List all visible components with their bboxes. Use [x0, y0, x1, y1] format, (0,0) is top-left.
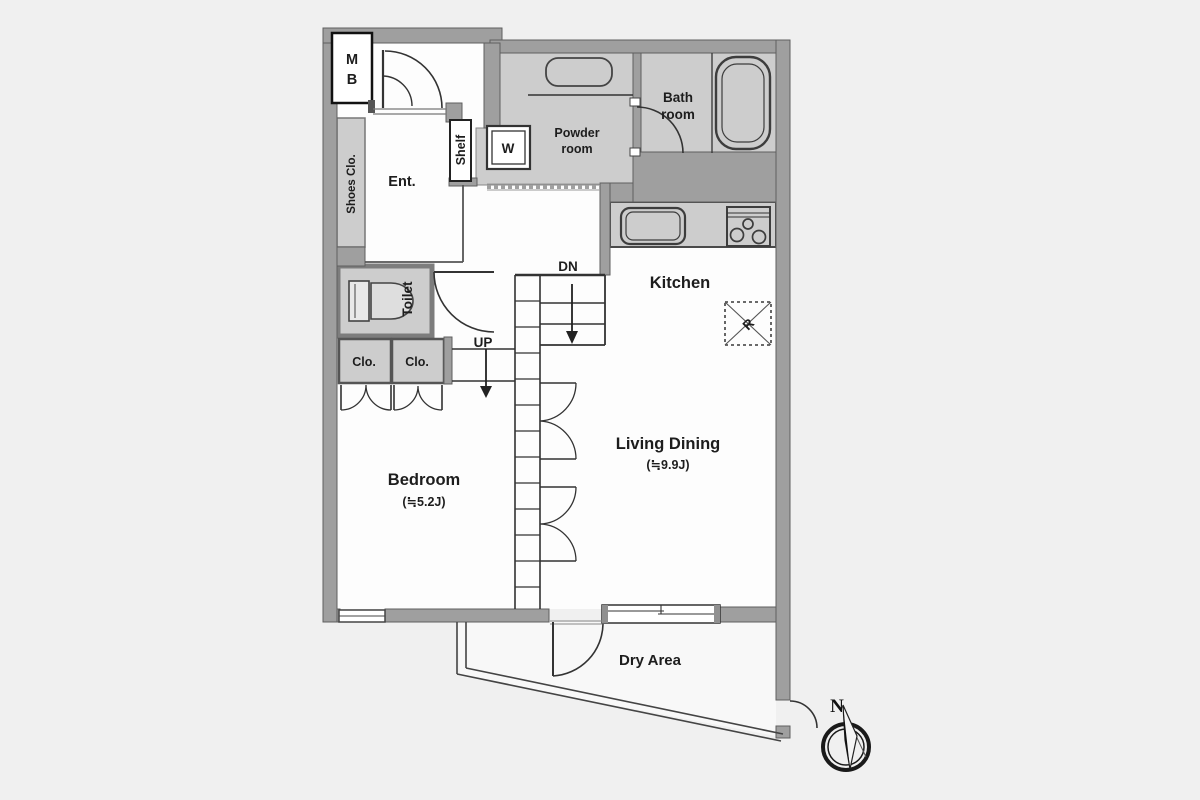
meter-box — [332, 33, 372, 103]
shelf-label: Shelf — [454, 134, 468, 165]
floor-plan-page: M B Shoes Clo. Ent. Shelf W Powder room … — [0, 0, 1200, 800]
wall-bath-kitchen — [633, 152, 776, 202]
bathroom-label: room — [661, 107, 695, 122]
closet-1-label: Clo. — [352, 355, 376, 369]
wall-hall-powder — [484, 43, 500, 128]
bathroom-label: Bath — [663, 90, 693, 105]
entry-door-jamb-icon — [368, 100, 375, 113]
powder-room-label: Powder — [554, 126, 599, 140]
bath-door-jamb-icon — [630, 148, 640, 156]
entrance-label: Ent. — [388, 174, 415, 190]
wall-bottom-right — [720, 607, 776, 622]
window-jamb-icon — [602, 605, 608, 623]
closet-2-label: Clo. — [405, 355, 429, 369]
wall-hall-kitchen — [600, 183, 610, 275]
toilet-label: Toilet — [400, 281, 415, 317]
wall-right — [776, 40, 790, 700]
window-jamb-icon — [714, 605, 720, 623]
meter-box-label: M — [346, 52, 358, 68]
kitchen-label: Kitchen — [650, 274, 711, 292]
meter-box-label: B — [347, 72, 357, 88]
wall-right-stub — [776, 726, 790, 738]
stairs-up-label: UP — [474, 335, 493, 350]
floor-plan-drawing: M B Shoes Clo. Ent. Shelf W Powder room … — [0, 0, 1200, 800]
stairs-down-label: DN — [558, 259, 578, 274]
bath-door-jamb-icon — [630, 98, 640, 106]
bedroom-size: (≒5.2J) — [402, 495, 445, 509]
bedroom-label: Bedroom — [388, 471, 460, 489]
living-dining-label: Living Dining — [616, 435, 721, 453]
toilet-tank-icon — [349, 281, 369, 321]
wall-top-right — [490, 40, 790, 53]
compass-icon: N — [823, 696, 869, 770]
dry-area-floor — [457, 622, 776, 736]
wall-closet-stub — [444, 337, 452, 384]
wall-bottom-left — [385, 609, 549, 622]
powder-room-label: room — [561, 142, 592, 156]
dry-area-label: Dry Area — [619, 652, 682, 669]
living-dining-size: (≒9.9J) — [646, 458, 689, 472]
shoes-closet-label: Shoes Clo. — [346, 154, 358, 213]
dry-area-gate-swing — [790, 701, 817, 728]
wall-left — [323, 28, 337, 622]
wall-shoes-toilet — [337, 247, 365, 266]
washer-label: W — [502, 141, 515, 156]
